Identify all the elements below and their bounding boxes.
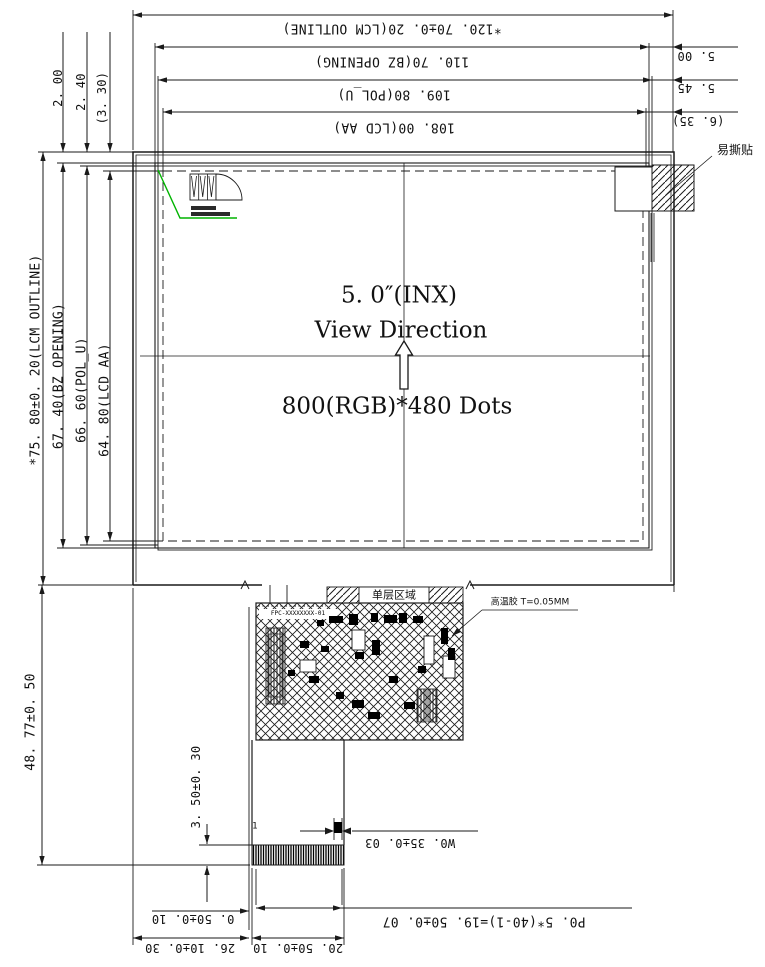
dim-top-pol-u: 109. 80(POL_U) [337, 88, 451, 101]
dim-bottom-connector-width: 20. 50±0. 10 [253, 942, 343, 954]
easy-tear-sticker [615, 156, 712, 262]
pin40-marker [334, 822, 342, 833]
dim-top-lcm-outline: *120. 70±0. 20(LCM OUTLINE) [282, 22, 501, 35]
dim-bottom-connector-offset: 26. 10±0. 30 [145, 942, 235, 954]
dim-bottom-edge-offset: 0. 50±0. 10 [152, 913, 235, 925]
pin1-label: 1 [252, 823, 258, 832]
dim-left-total-height: 48. 77±0. 50 [25, 673, 38, 771]
polarizer-mark-icon [158, 170, 242, 218]
panel-size-label: 5. 0″(INX) [341, 285, 457, 308]
fpc-assembly [252, 587, 463, 865]
dim-left-pol-u: 66. 60(POL_U) [76, 337, 89, 443]
dim-right-5-45: 5. 45 [677, 82, 715, 94]
fpc-connector-fingers [252, 845, 344, 865]
easy-tear-sticker-label: 易撕贴 [717, 144, 753, 156]
view-direction-arrow [396, 341, 413, 389]
dimension-lines [42, 15, 673, 938]
drawing-linework [0, 0, 765, 967]
dim-left-bz-opening: 67. 40(BZ OPENING) [53, 303, 66, 449]
high-temp-adhesive-label: 高温胶 T=0.05MM [491, 599, 569, 608]
dim-left-lcm-outline: *75. 80±0. 20(LCM OUTLINE) [30, 254, 43, 465]
dim-right-6-35: (6. 35) [672, 115, 725, 127]
panel-resolution-label: 800(RGB)*480 Dots [282, 396, 512, 419]
dim-right-5-00: 5. 00 [677, 50, 715, 62]
adhesive-leader [452, 610, 578, 636]
dim-topleft-2-00: 2. 00 [52, 69, 64, 107]
dim-bottom-pitch: P0. 5*(40-1)=19. 50±0. 07 [382, 915, 585, 928]
dim-topleft-3-30: (3. 30) [96, 72, 108, 125]
extension-lines [37, 10, 738, 945]
single-layer-area-label: 单层区域 [372, 590, 416, 601]
dim-bottom-pin-width: W0. 35±0. 03 [365, 837, 455, 849]
sticker-hatch [652, 165, 694, 211]
dim-top-bz-opening: 110. 70(BZ OPENING) [315, 55, 469, 68]
lcm-outline-drawing: *120. 70±0. 20(LCM OUTLINE) 110. 70(BZ O… [0, 0, 765, 967]
dim-tail-height: 3. 50±0. 30 [190, 746, 202, 829]
dim-top-lcd-aa: 108. 00(LCD AA) [333, 121, 455, 134]
view-direction-label: View Direction [315, 320, 488, 343]
dim-topleft-2-40: 2. 40 [75, 73, 87, 111]
fpc-part-marking: FPC-XXXXXXXX-01 [271, 611, 325, 617]
dim-left-lcd-aa: 64. 80(LCD AA) [99, 343, 112, 457]
